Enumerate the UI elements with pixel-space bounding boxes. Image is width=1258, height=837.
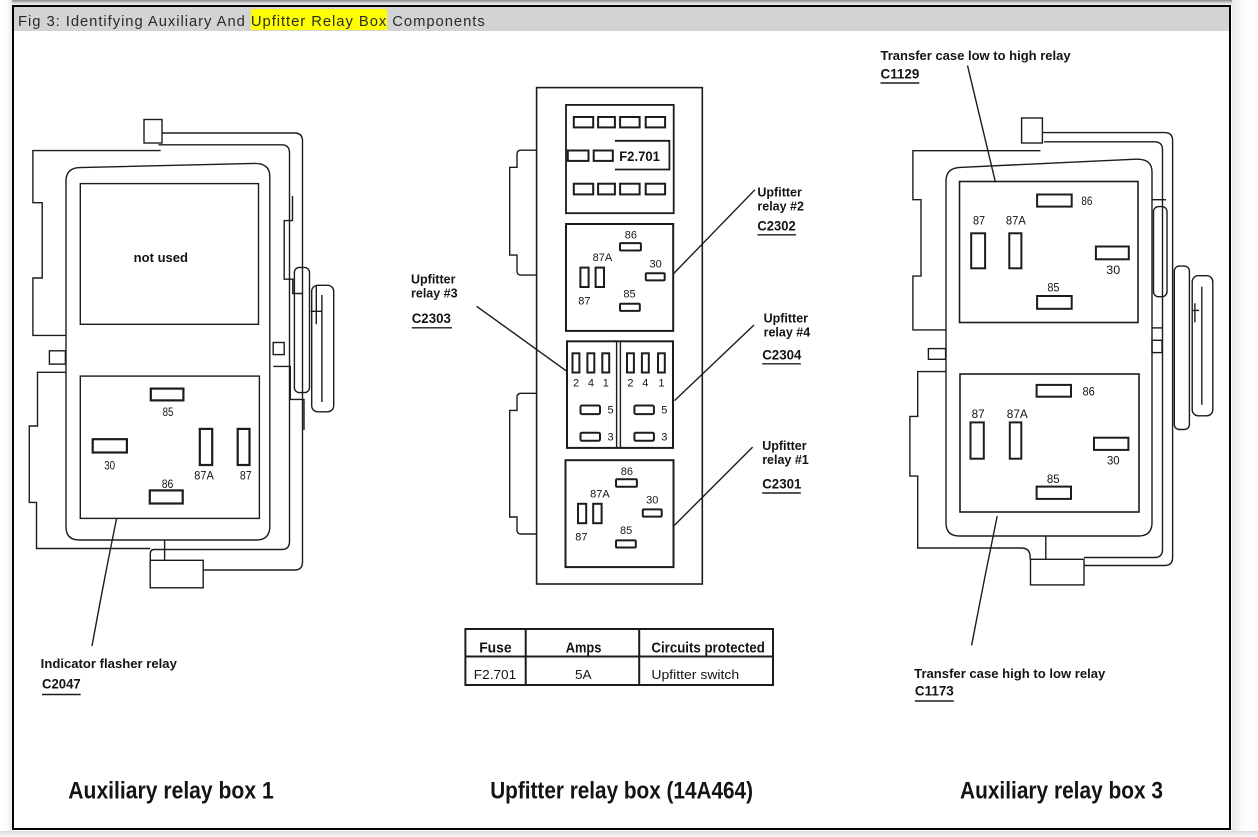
svg-text:87: 87 bbox=[575, 531, 587, 543]
svg-text:30: 30 bbox=[646, 494, 658, 506]
svg-text:4: 4 bbox=[588, 378, 594, 390]
svg-text:3: 3 bbox=[661, 432, 667, 444]
svg-text:30: 30 bbox=[104, 458, 115, 472]
svg-text:5: 5 bbox=[661, 405, 667, 417]
svg-text:C1129: C1129 bbox=[881, 66, 920, 82]
svg-text:Upfitter: Upfitter bbox=[762, 439, 807, 453]
svg-text:C2303: C2303 bbox=[412, 310, 451, 326]
svg-text:relay #3: relay #3 bbox=[411, 287, 458, 301]
svg-text:1: 1 bbox=[658, 378, 664, 390]
svg-text:relay #1: relay #1 bbox=[762, 453, 809, 467]
svg-text:5A: 5A bbox=[575, 668, 592, 682]
svg-text:87A: 87A bbox=[593, 252, 613, 264]
svg-text:not used: not used bbox=[134, 251, 188, 265]
svg-text:86: 86 bbox=[1083, 385, 1095, 399]
svg-text:87: 87 bbox=[972, 407, 985, 421]
svg-text:87A: 87A bbox=[1006, 214, 1026, 228]
svg-text:86: 86 bbox=[621, 466, 633, 478]
svg-text:87: 87 bbox=[240, 469, 252, 483]
svg-text:87: 87 bbox=[973, 214, 985, 228]
svg-text:C1173: C1173 bbox=[915, 683, 954, 699]
svg-text:3: 3 bbox=[608, 432, 614, 444]
svg-text:relay #2: relay #2 bbox=[757, 200, 804, 214]
svg-text:Upfitter: Upfitter bbox=[411, 273, 456, 287]
svg-text:2: 2 bbox=[573, 378, 579, 390]
svg-text:5: 5 bbox=[608, 405, 614, 417]
svg-text:86: 86 bbox=[162, 477, 174, 491]
svg-text:Amps: Amps bbox=[566, 639, 602, 656]
svg-text:C2301: C2301 bbox=[762, 476, 801, 492]
svg-text:85: 85 bbox=[1047, 472, 1060, 486]
svg-text:30: 30 bbox=[1107, 453, 1120, 467]
svg-text:30: 30 bbox=[1106, 263, 1120, 277]
svg-text:Fuse: Fuse bbox=[479, 639, 511, 656]
svg-text:F2.701: F2.701 bbox=[474, 668, 516, 682]
svg-text:Transfer case low to high rela: Transfer case low to high relay bbox=[881, 49, 1071, 63]
svg-text:87A: 87A bbox=[590, 488, 610, 500]
svg-text:Transfer case high to low rela: Transfer case high to low relay bbox=[914, 667, 1105, 681]
svg-text:87A: 87A bbox=[1007, 407, 1028, 421]
svg-text:Upfitter: Upfitter bbox=[764, 311, 809, 325]
svg-text:85: 85 bbox=[620, 525, 632, 537]
svg-text:Auxiliary relay box 3: Auxiliary relay box 3 bbox=[960, 778, 1163, 805]
svg-text:C2302: C2302 bbox=[757, 217, 795, 233]
svg-text:85: 85 bbox=[623, 289, 635, 301]
svg-text:Indicator flasher relay: Indicator flasher relay bbox=[41, 657, 177, 671]
svg-text:86: 86 bbox=[1081, 194, 1092, 208]
svg-text:85: 85 bbox=[1047, 281, 1059, 295]
svg-text:F2.701: F2.701 bbox=[619, 148, 660, 164]
svg-text:Upfitter relay box (14A464): Upfitter relay box (14A464) bbox=[490, 778, 753, 805]
svg-text:C2304: C2304 bbox=[762, 346, 801, 362]
svg-text:Auxiliary relay box 1: Auxiliary relay box 1 bbox=[68, 778, 273, 805]
svg-text:85: 85 bbox=[163, 405, 174, 419]
svg-text:87: 87 bbox=[578, 295, 590, 307]
svg-text:Upfitter: Upfitter bbox=[757, 186, 802, 200]
svg-text:C2047: C2047 bbox=[42, 676, 81, 692]
svg-text:relay #4: relay #4 bbox=[764, 325, 811, 339]
svg-text:4: 4 bbox=[642, 378, 648, 390]
svg-text:Upfitter switch: Upfitter switch bbox=[651, 668, 739, 682]
svg-text:30: 30 bbox=[649, 259, 661, 271]
svg-text:86: 86 bbox=[625, 230, 637, 242]
svg-text:87A: 87A bbox=[194, 469, 214, 483]
svg-text:1: 1 bbox=[603, 378, 609, 390]
svg-text:Circuits protected: Circuits protected bbox=[651, 639, 765, 656]
svg-text:2: 2 bbox=[627, 378, 633, 390]
